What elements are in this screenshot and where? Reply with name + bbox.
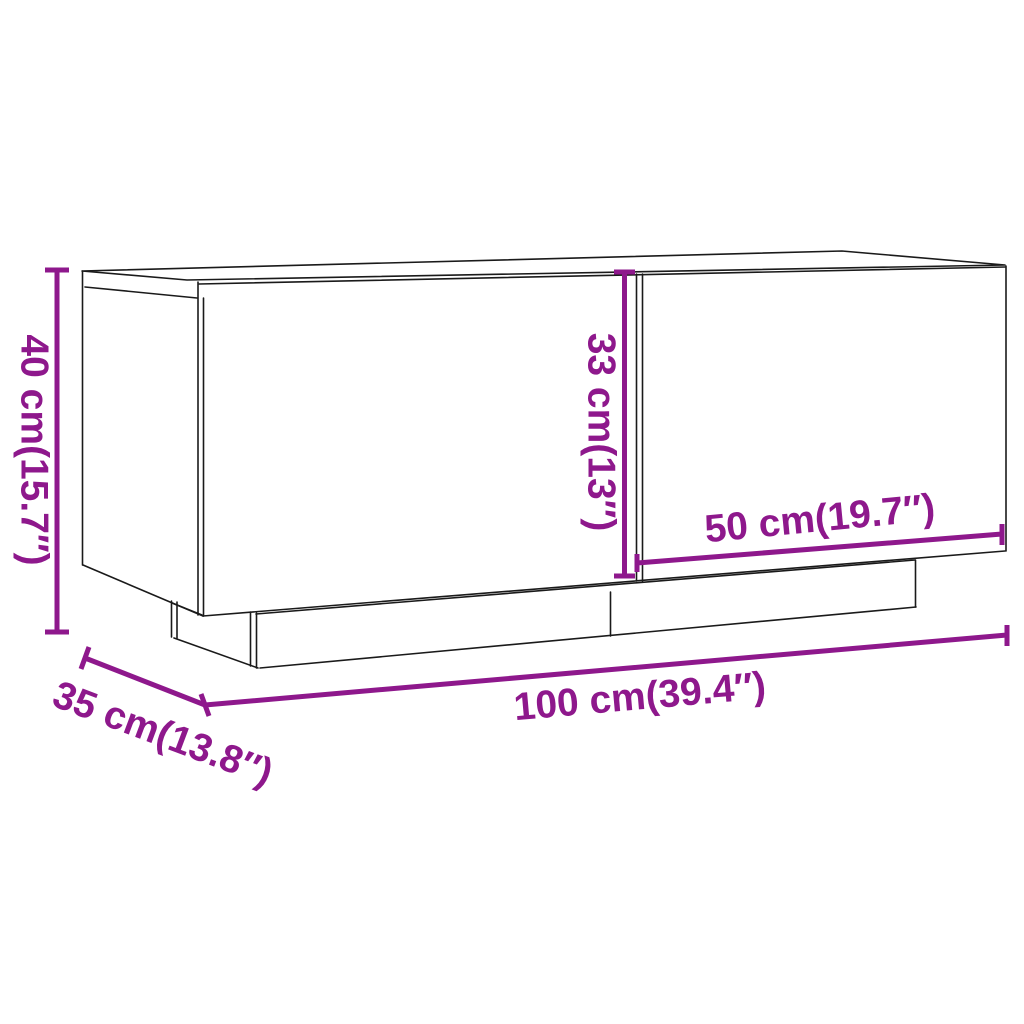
cabinet-top-face: [82, 251, 1005, 280]
depth-dimension-label: 35 cm(13.8″): [47, 673, 279, 795]
door-width-dimension: 50 cm(19.7″): [637, 486, 1002, 572]
plinth-front-top-edge: [256, 560, 915, 614]
cabinet-outline: [82, 251, 1006, 668]
inner-height-dimension-label: 33 cm(13″): [580, 333, 623, 532]
height-dimension: 40 cm(15.7″): [13, 270, 69, 632]
front-bottom-edge: [203, 551, 1005, 616]
dimension-annotations: 40 cm(15.7″) 33 cm(13″) 50 cm(19.7″) 100…: [13, 270, 1007, 795]
height-dimension-label: 40 cm(15.7″): [13, 334, 56, 565]
inner-height-dimension: 33 cm(13″): [580, 272, 635, 576]
cabinet-top-front-edge: [199, 267, 1005, 284]
depth-dimension: 35 cm(13.8″): [47, 647, 279, 795]
tv-cabinet-diagram-svg: 40 cm(15.7″) 33 cm(13″) 50 cm(19.7″) 100…: [0, 0, 1024, 1024]
plinth-left-bottom-edge: [174, 638, 258, 668]
width-dimension: 100 cm(39.4″): [201, 625, 1007, 729]
dimension-diagram: 40 cm(15.7″) 33 cm(13″) 50 cm(19.7″) 100…: [0, 0, 1024, 1024]
side-panel-top-edge: [85, 287, 197, 298]
plinth-front-bottom-edge: [260, 607, 916, 668]
